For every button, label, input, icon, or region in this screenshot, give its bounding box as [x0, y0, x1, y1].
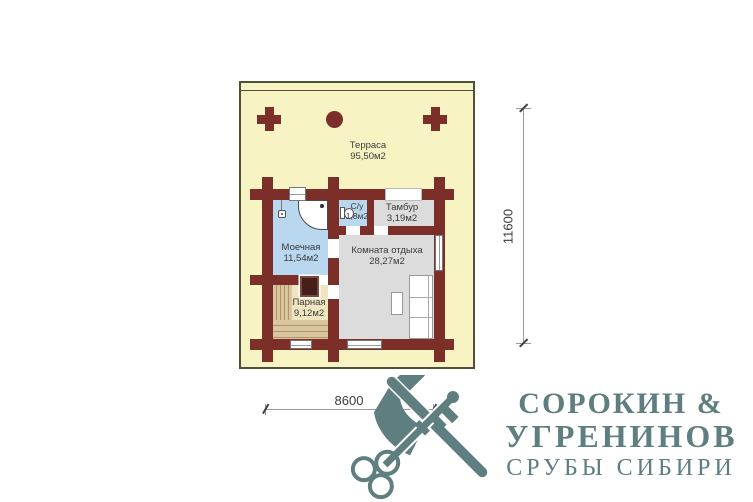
shower-drain-icon	[320, 204, 324, 208]
room-name: Моечная	[282, 242, 321, 253]
log-end	[434, 350, 445, 362]
logo-text: СОРОКИН & УГРЕНИНОВ СРУБЫ СИБИРИ	[505, 388, 737, 482]
terrace-edge-line	[241, 90, 473, 91]
room-area: 9,12м2	[292, 308, 325, 319]
wall	[339, 226, 346, 235]
room-label-parnaya: Парная 9,12м2	[292, 297, 325, 319]
log-end	[262, 350, 273, 362]
room-name: Парная	[292, 297, 325, 308]
floor-plan: Терраса 95,50м2	[239, 81, 475, 369]
wall	[328, 299, 339, 350]
room-name: Тамбур	[386, 202, 418, 213]
room-label-terrace: Терраса 95,50м2	[350, 140, 386, 162]
wall	[388, 226, 445, 235]
column-cross-icon	[423, 107, 447, 131]
wall	[328, 258, 339, 285]
column-circle-icon	[326, 111, 343, 128]
wall	[328, 189, 339, 239]
logo-axe-key-icon	[340, 375, 525, 502]
wall	[250, 189, 454, 200]
room-area: 28,27м2	[351, 256, 422, 267]
room-label-tambur: Тамбур 3,19м2	[386, 202, 418, 224]
window	[290, 340, 312, 349]
wall	[262, 189, 273, 350]
log-end	[328, 350, 339, 362]
room-area: 3,19м2	[386, 213, 418, 224]
room-area: 95,50м2	[350, 151, 386, 162]
dimension-line-height	[523, 108, 524, 344]
door-opening	[374, 226, 388, 235]
sofa-icon	[409, 275, 433, 339]
room-area: 1,8м2	[346, 211, 368, 221]
room-label-komnata: Комната отдыха 28,27м2	[351, 245, 422, 267]
door-opening	[319, 275, 328, 285]
table-icon	[391, 292, 403, 315]
window	[289, 187, 306, 201]
log-end	[434, 177, 445, 189]
room-area: 11,54м2	[282, 253, 321, 264]
room-name: Комната отдыха	[351, 245, 422, 256]
door-opening	[328, 239, 339, 258]
dimension-height-value: 11600	[501, 205, 516, 249]
stove-icon	[300, 276, 319, 297]
entry-door-opening	[385, 188, 422, 201]
page: { "plan": { "rooms": [ {"name": "Терраса…	[0, 0, 753, 502]
log-end	[328, 177, 339, 189]
water-fixture-dot	[281, 213, 283, 215]
wall	[360, 226, 374, 235]
room-label-moechnaya: Моечная 11,54м2	[282, 242, 321, 264]
window	[347, 340, 382, 349]
logo-line-3: СРУБЫ СИБИРИ	[505, 455, 737, 482]
door-opening	[328, 285, 339, 299]
logo-line-1: СОРОКИН &	[505, 388, 737, 419]
log-end	[262, 177, 273, 189]
sauna-bench	[273, 320, 328, 339]
room-name: Терраса	[350, 140, 386, 151]
window	[435, 235, 443, 271]
room-label-su: С/у 1,8м2	[346, 201, 368, 221]
room-name: С/у	[346, 201, 368, 211]
logo-line-2: УГРЕНИНОВ	[505, 419, 737, 453]
door-opening	[346, 226, 360, 235]
column-cross-icon	[257, 107, 281, 131]
